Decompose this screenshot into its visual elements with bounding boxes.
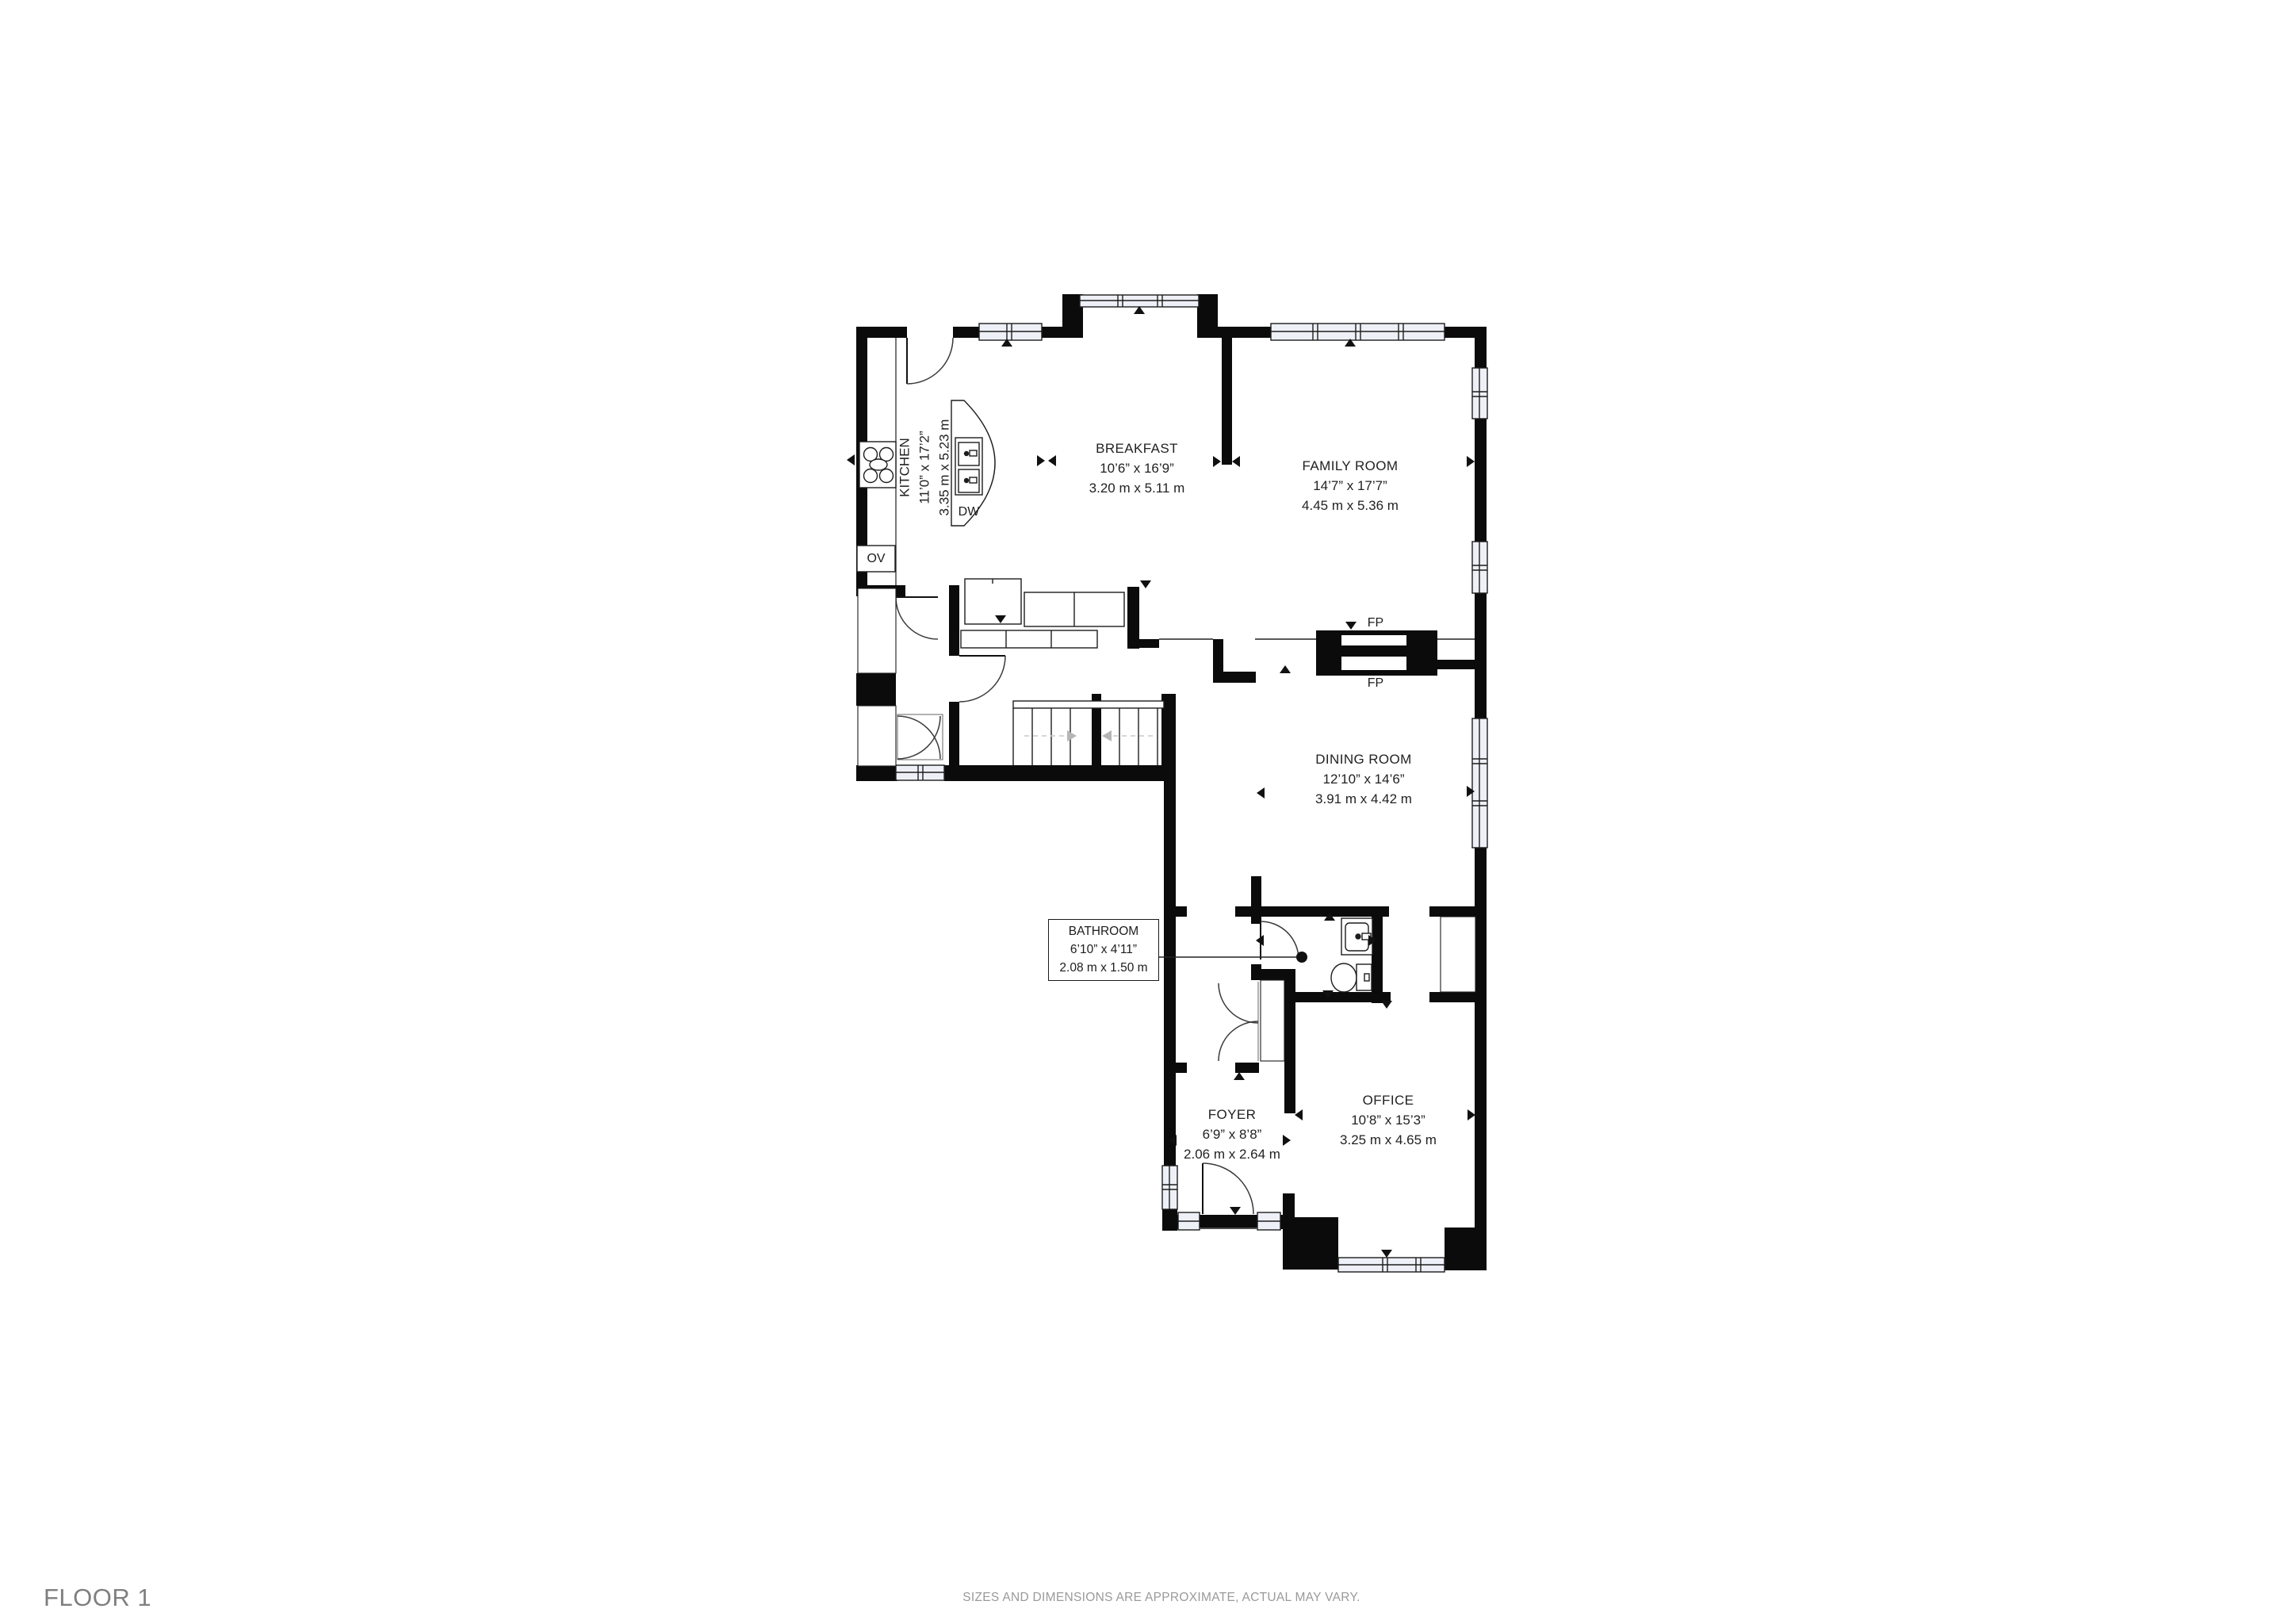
arrow-left-icon	[847, 454, 855, 465]
room-label-family: FAMILY ROOM 14’7” x 17’7” 4.45 m x 5.36 …	[1271, 456, 1429, 515]
room-dim-metric: 4.45 m x 5.36 m	[1271, 496, 1429, 515]
door-bathroom	[1261, 921, 1299, 959]
refrigerator-icon	[965, 579, 1021, 624]
room-label-kitchen: KITCHEN 11’0” x 17’2” 3.35 m x 5.23 m	[895, 389, 955, 547]
foyer-closet-interior	[1261, 980, 1284, 1061]
door-kitchen-entry	[907, 338, 953, 384]
room-label-foyer: FOYER 6’9” x 8’8” 2.06 m x 2.64 m	[1153, 1105, 1311, 1164]
room-dim-metric: 3.91 m x 4.42 m	[1284, 789, 1443, 809]
door-hall	[959, 656, 1005, 702]
arrow-left-icon	[1048, 455, 1056, 466]
arrow-right-icon	[1467, 456, 1475, 467]
room-dim-imperial: 10’8” x 15’3”	[1309, 1110, 1468, 1130]
room-label-bathroom: BATHROOM 6’10” x 4’11” 2.08 m x 1.50 m	[1048, 919, 1159, 981]
window-dining-east	[1472, 718, 1487, 848]
cooktop-icon	[859, 442, 896, 488]
room-label-office: OFFICE 10’8” x 15’3” 3.25 m x 4.65 m	[1309, 1090, 1468, 1150]
room-name: FOYER	[1153, 1105, 1311, 1124]
window-entry-sidelite-right	[1257, 1212, 1280, 1230]
room-dim-imperial: 6’10” x 4’11”	[1049, 940, 1158, 959]
arrow-left-icon	[1232, 456, 1240, 467]
hall-closet	[858, 706, 896, 766]
room-name: KITCHEN	[895, 389, 915, 547]
bathroom-label-leader	[1158, 952, 1307, 963]
door-pantry	[896, 597, 938, 639]
window-bottom-left	[896, 765, 944, 780]
room-name: BREAKFAST	[1058, 439, 1216, 458]
window-foyer-west	[1162, 1166, 1177, 1209]
staircase	[1013, 701, 1164, 765]
window-family-east-2	[1472, 542, 1487, 593]
room-dim-imperial: 14’7” x 17’7”	[1271, 476, 1429, 496]
window-entry-sidelite-left	[1178, 1212, 1200, 1230]
window-office-bay	[1338, 1258, 1445, 1272]
disclaimer-text: SIZES AND DIMENSIONS ARE APPROXIMATE, AC…	[924, 1591, 1399, 1605]
sink-vanity-icon	[1341, 918, 1372, 955]
fireplace-label-upper: FP	[1364, 616, 1387, 630]
room-dim-metric: 2.08 m x 1.50 m	[1049, 959, 1158, 977]
arrow-down-icon	[1345, 622, 1357, 630]
dishwasher-label: DW	[954, 505, 984, 519]
oven-label: OV	[859, 552, 894, 566]
room-name: FAMILY ROOM	[1271, 456, 1429, 476]
window-top-right	[1271, 324, 1445, 340]
fireplace-icon	[1159, 630, 1475, 676]
arrow-down-icon	[1140, 580, 1151, 588]
office-closet-interior	[1441, 917, 1475, 992]
arrow-up-icon	[1234, 1072, 1245, 1080]
room-dim-metric: 2.06 m x 2.64 m	[1153, 1144, 1311, 1164]
floor-title: FLOOR 1	[44, 1584, 151, 1612]
window-top-left	[979, 324, 1042, 340]
arrow-up-icon	[1280, 665, 1291, 673]
door-foyer-closet	[1219, 982, 1258, 1061]
arrow-right-icon	[1468, 1109, 1475, 1120]
room-dim-imperial: 11’0” x 17’2”	[915, 389, 935, 547]
room-label-dining: DINING ROOM 12’10” x 14’6” 3.91 m x 4.42…	[1284, 749, 1443, 809]
arrow-left-icon	[1257, 787, 1265, 799]
room-label-breakfast: BREAKFAST 10’6” x 16’9” 3.20 m x 5.11 m	[1058, 439, 1216, 498]
toilet-icon	[1331, 963, 1372, 992]
floor-plan-drawing	[0, 0, 2296, 1624]
window-bay	[1080, 295, 1199, 307]
room-name: OFFICE	[1309, 1090, 1468, 1110]
room-name: BATHROOM	[1049, 922, 1158, 940]
room-dim-metric: 3.20 m x 5.11 m	[1058, 478, 1216, 498]
room-dim-imperial: 6’9” x 8’8”	[1153, 1124, 1311, 1144]
window-family-east-1	[1472, 368, 1487, 419]
room-dim-imperial: 10’6” x 16’9”	[1058, 458, 1216, 478]
room-name: DINING ROOM	[1284, 749, 1443, 769]
pantry-closet	[858, 588, 896, 673]
arrow-down-icon	[1230, 1207, 1241, 1215]
room-dim-metric: 3.35 m x 5.23 m	[935, 389, 955, 547]
floor-plan-page: KITCHEN 11’0” x 17’2” 3.35 m x 5.23 m BR…	[0, 0, 2296, 1624]
arrow-right-icon	[1037, 455, 1045, 466]
fireplace-label-lower: FP	[1364, 676, 1387, 691]
room-dim-imperial: 12’10” x 14’6”	[1284, 769, 1443, 789]
arrow-down-icon	[1381, 1001, 1392, 1009]
arrow-down-icon	[1381, 1250, 1392, 1258]
door-closet-left	[897, 714, 943, 760]
room-dim-metric: 3.25 m x 4.65 m	[1309, 1130, 1468, 1150]
